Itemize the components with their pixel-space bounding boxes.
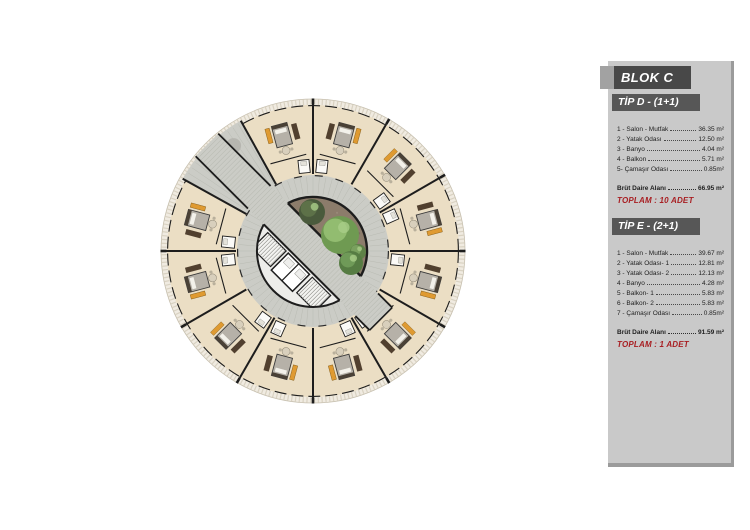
tip-title-bar: TİP D - (1+1) <box>612 94 700 111</box>
room-value: 12.81 m² <box>698 260 724 267</box>
dot-leader <box>647 284 700 285</box>
room-value: 5.83 m² <box>702 290 724 297</box>
room-label: 7 - Çamaşır Odası <box>617 310 670 317</box>
legend-panel: BLOK C TİP D - (1+1)1 - Salon - Mutfak36… <box>608 61 734 467</box>
dot-leader <box>671 264 696 265</box>
dot-leader <box>668 189 696 190</box>
room-row: 5 - Balkon- 15.83 m² <box>608 290 731 300</box>
dot-leader <box>664 140 697 141</box>
room-label: 4 - Balkon <box>617 156 646 163</box>
bathroom-box <box>390 254 404 266</box>
gross-row: Brüt Daire Alanı66.95 m² <box>608 185 731 195</box>
gross-row: Brüt Daire Alanı91.59 m² <box>608 329 731 339</box>
room-value: 5.71 m² <box>702 156 724 163</box>
room-row: 7 - Çamaşır Odası0.85m² <box>608 310 731 320</box>
total-label: TOPLAM : 10 ADET <box>608 196 731 205</box>
room-value: 4.04 m² <box>702 146 724 153</box>
total-label: TOPLAM : 1 ADET <box>608 340 731 349</box>
room-row: 1 - Salon - Mutfak39.67 m² <box>608 250 731 260</box>
room-label: 5- Çamaşır Odası <box>617 166 668 173</box>
room-row: 3 - Yatak Odası- 212.13 m² <box>608 270 731 280</box>
room-list: 1 - Salon - Mutfak39.67 m²2 - Yatak Odas… <box>608 250 731 320</box>
room-value: 0.85m² <box>704 310 724 317</box>
room-value: 66.95 m² <box>698 185 724 192</box>
tip-section: TİP D - (1+1)1 - Salon - Mutfak36.35 m²2… <box>608 94 731 205</box>
room-label: 1 - Salon - Mutfak <box>617 126 668 133</box>
block-title: BLOK C <box>621 70 673 85</box>
room-row: 4 - Banyo4.28 m² <box>608 280 731 290</box>
room-label: 5 - Balkon- 1 <box>617 290 654 297</box>
room-label: 3 - Yatak Odası- 2 <box>617 270 669 277</box>
room-label: 3 - Banyo <box>617 146 645 153</box>
tip-title-bar: TİP E - (2+1) <box>612 218 700 235</box>
block-title-chip: BLOK C <box>614 66 691 89</box>
room-value: 12.13 m² <box>698 270 724 277</box>
bathroom-box <box>221 236 235 248</box>
room-label: 2 - Yatak Odası- 1 <box>617 260 669 267</box>
legend-sections: TİP D - (1+1)1 - Salon - Mutfak36.35 m²2… <box>608 61 731 349</box>
room-label: 1 - Salon - Mutfak <box>617 250 668 257</box>
block-title-bar: BLOK C <box>600 66 691 89</box>
dot-leader <box>671 274 696 275</box>
dot-leader <box>648 160 700 161</box>
dot-leader <box>647 150 700 151</box>
tip-section: TİP E - (2+1)1 - Salon - Mutfak39.67 m²2… <box>608 218 731 349</box>
tree-icon <box>299 199 325 225</box>
dot-leader <box>670 170 701 171</box>
room-value: 12.50 m² <box>698 136 724 143</box>
room-label: 2 - Yatak Odası <box>617 136 662 143</box>
room-row: 5- Çamaşır Odası0.85m² <box>608 166 731 176</box>
room-label: 4 - Banyo <box>617 280 645 287</box>
room-value: 36.35 m² <box>698 126 724 133</box>
dot-leader <box>670 130 696 131</box>
room-row: 6 - Balkon- 25.83 m² <box>608 300 731 310</box>
room-row: 1 - Salon - Mutfak36.35 m² <box>608 126 731 136</box>
bathroom-box <box>221 254 235 266</box>
dot-leader <box>668 333 696 334</box>
bathroom-box <box>316 159 328 173</box>
room-row: 2 - Yatak Odası12.50 m² <box>608 136 731 146</box>
room-value: 0.85m² <box>704 166 724 173</box>
room-value: 91.59 m² <box>698 329 724 336</box>
room-value: 5.83 m² <box>702 300 724 307</box>
page: BLOK C TİP D - (1+1)1 - Salon - Mutfak36… <box>0 0 750 530</box>
tree-icon <box>339 251 363 275</box>
room-list: 1 - Salon - Mutfak36.35 m²2 - Yatak Odas… <box>608 126 731 176</box>
room-label: Brüt Daire Alanı <box>617 329 666 336</box>
bathroom-box <box>298 159 310 173</box>
room-row: 3 - Banyo4.04 m² <box>608 146 731 156</box>
room-label: 6 - Balkon- 2 <box>617 300 654 307</box>
dot-leader <box>656 304 700 305</box>
block-title-shadow <box>600 66 614 89</box>
room-label: Brüt Daire Alanı <box>617 185 666 192</box>
dot-leader <box>656 294 700 295</box>
dot-leader <box>670 254 696 255</box>
room-value: 4.28 m² <box>702 280 724 287</box>
room-row: 4 - Balkon5.71 m² <box>608 156 731 166</box>
dot-leader <box>672 314 702 315</box>
room-row: 2 - Yatak Odası- 112.81 m² <box>608 260 731 270</box>
room-value: 39.67 m² <box>698 250 724 257</box>
